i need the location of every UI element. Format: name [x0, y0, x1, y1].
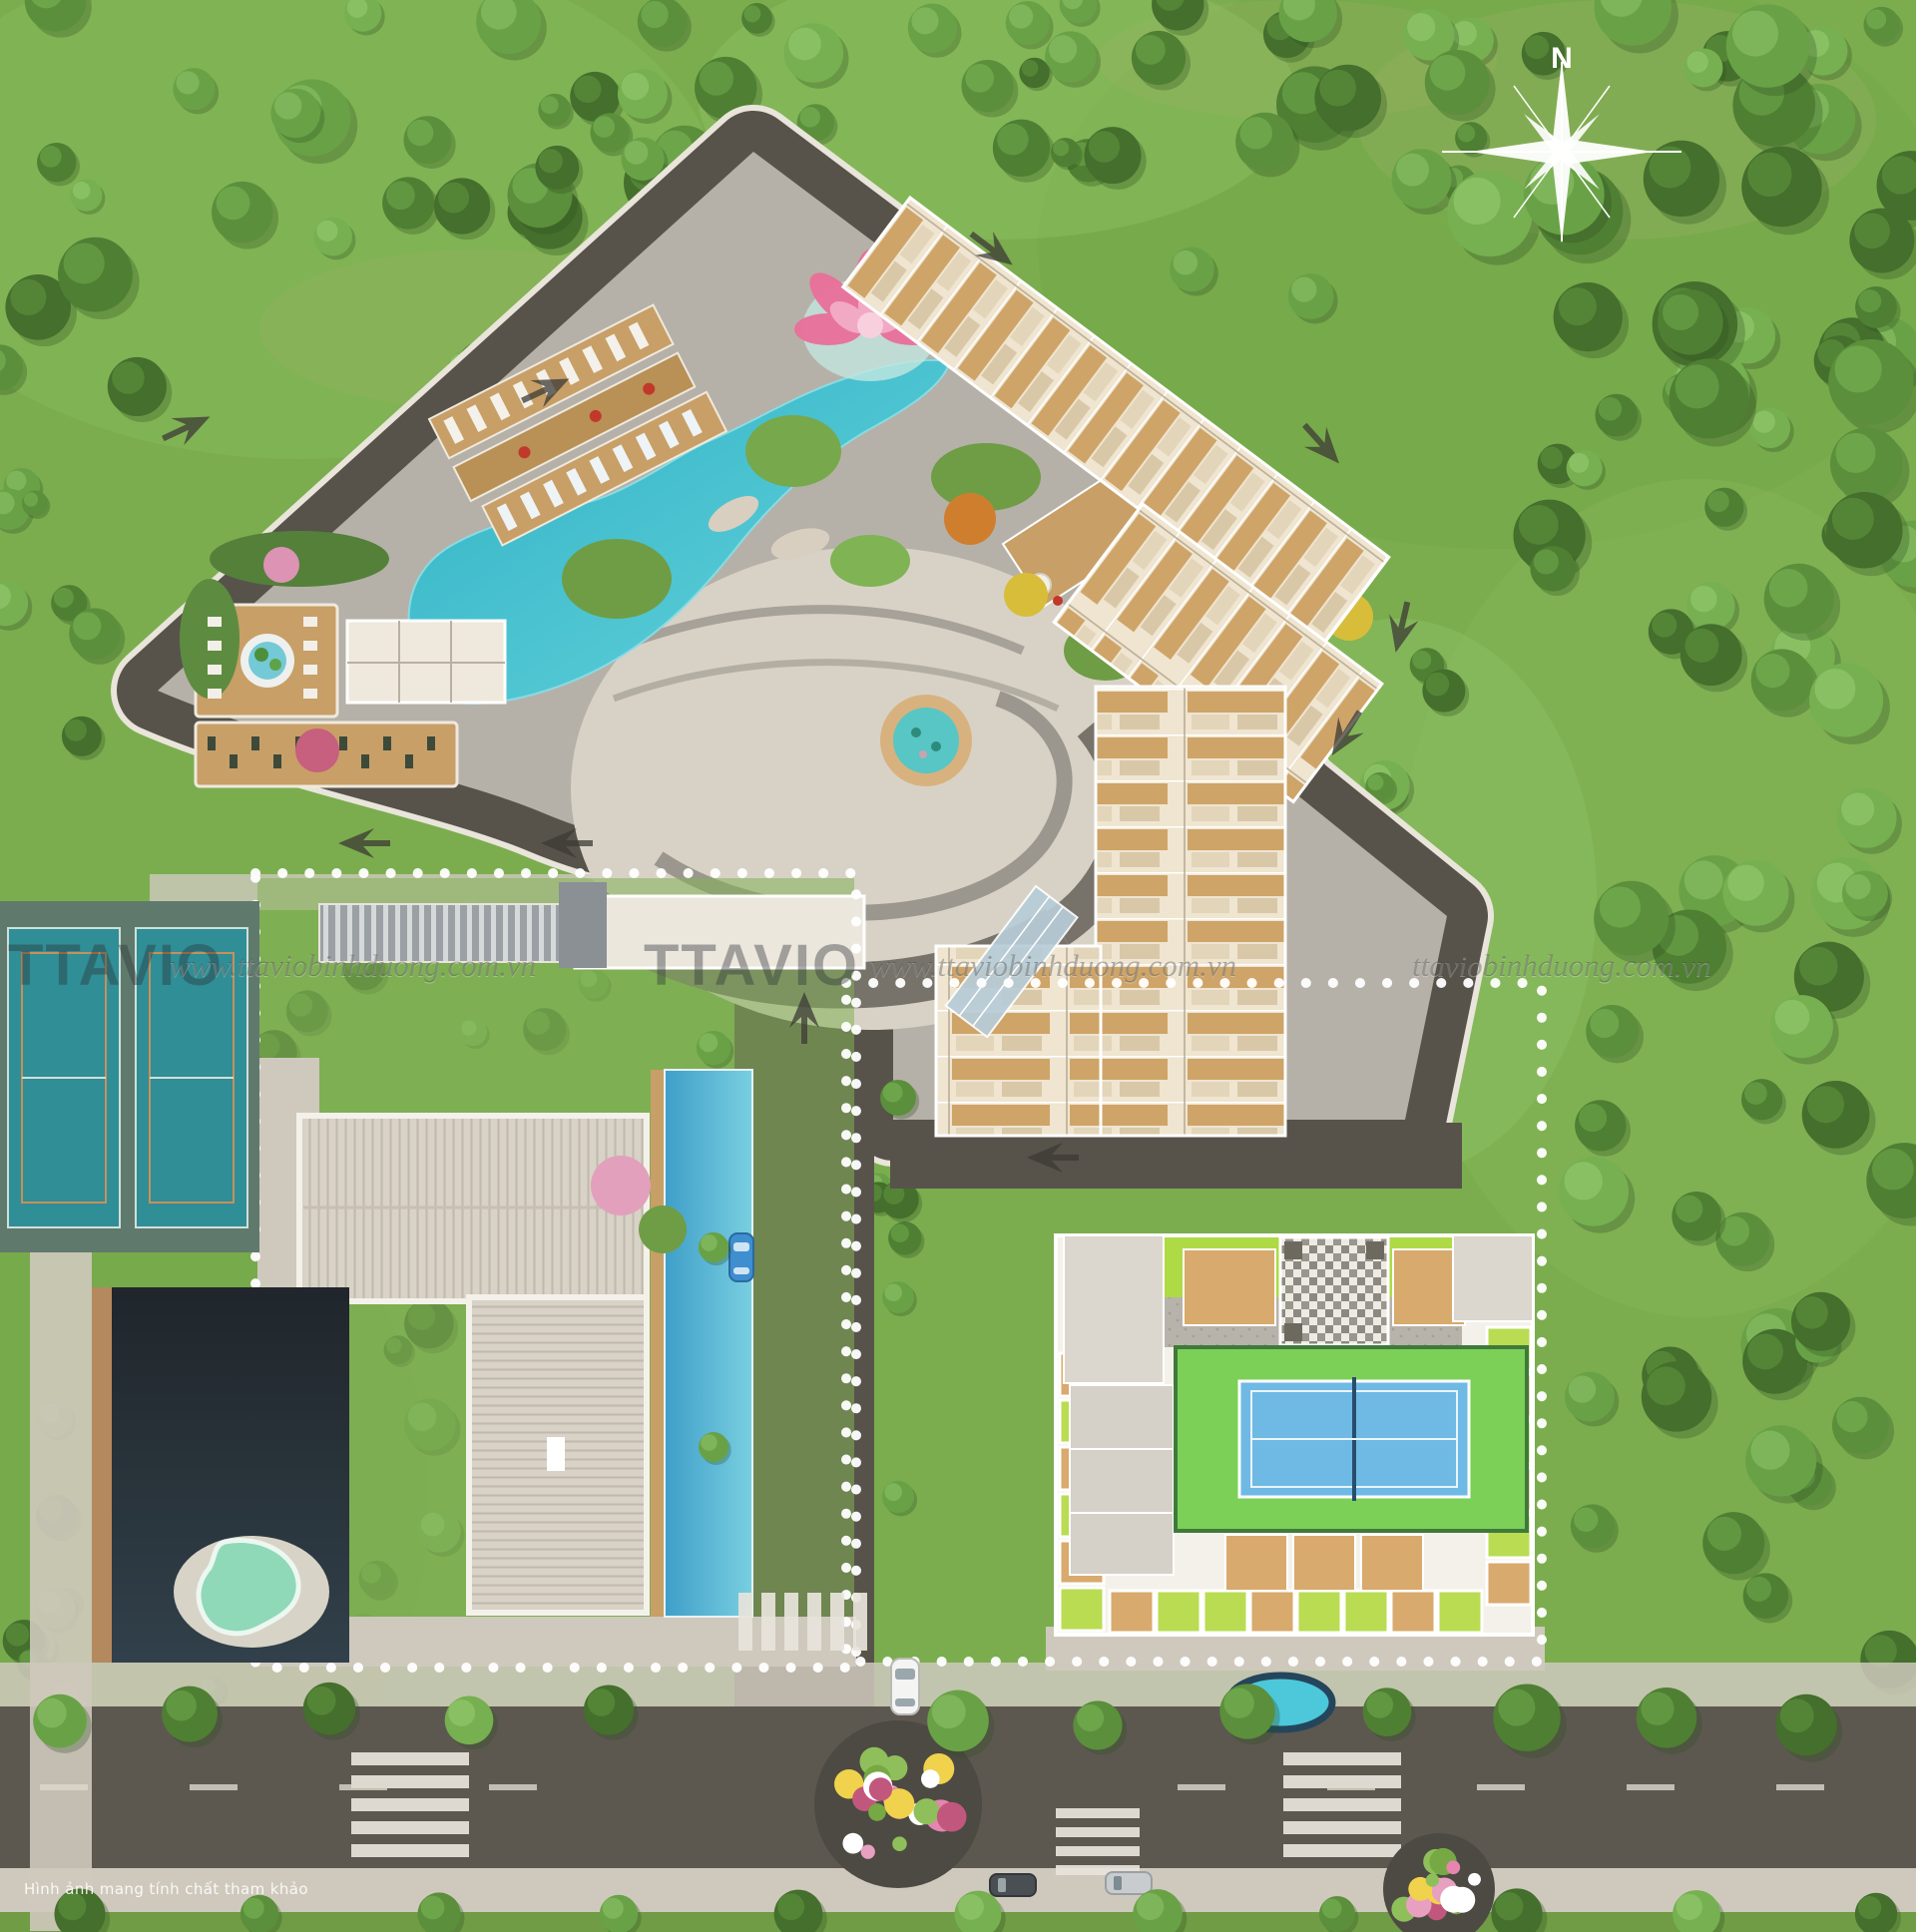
- tree-highlight: [307, 1687, 336, 1715]
- red-flowering-tree: [295, 728, 339, 772]
- tree-highlight: [884, 1283, 902, 1301]
- gym-equipment: [427, 736, 435, 750]
- tree-highlight: [1407, 13, 1435, 41]
- tree-highlight: [1396, 154, 1429, 187]
- tree-highlight: [1795, 1296, 1827, 1328]
- tree-highlight: [1049, 35, 1077, 63]
- tree-highlight: [911, 7, 938, 34]
- dining-table: [303, 689, 317, 699]
- tree-highlight: [1684, 629, 1718, 663]
- tree-highlight: [243, 1898, 264, 1919]
- tree-highlight: [1750, 1431, 1789, 1470]
- tree-highlight: [217, 187, 250, 221]
- flower: [1426, 1873, 1439, 1886]
- lane-dash: [489, 1784, 537, 1790]
- dining-table: [303, 641, 317, 651]
- tree-highlight: [1835, 433, 1875, 473]
- tree-highlight: [641, 1, 668, 28]
- tree-highlight: [1291, 277, 1316, 302]
- tree-highlight: [1137, 1893, 1164, 1920]
- tree-highlight: [73, 182, 91, 200]
- roof-pergola: [1184, 1249, 1275, 1325]
- balcony-cell: [1110, 1591, 1154, 1633]
- dining-table: [208, 641, 222, 651]
- tree-highlight: [6, 471, 26, 491]
- reference-caption: Hình ảnh mang tính chất tham khảo: [24, 1878, 308, 1900]
- balcony-cell: [1060, 1588, 1104, 1631]
- tree-highlight: [1684, 860, 1723, 899]
- gym-equipment: [230, 754, 238, 768]
- entry-wall: [559, 882, 607, 968]
- tree-highlight: [1707, 491, 1729, 513]
- lane-dash: [1776, 1784, 1824, 1790]
- tree-highlight: [1744, 1082, 1767, 1105]
- tree-highlight: [10, 279, 46, 315]
- tree-highlight: [541, 96, 559, 114]
- tree-highlight: [1223, 1688, 1253, 1717]
- pink-flowering-tree: [263, 547, 299, 583]
- tree-highlight: [1574, 1508, 1598, 1532]
- zebra-stripe: [351, 1844, 469, 1857]
- zebra-stripe: [1283, 1821, 1401, 1834]
- tree-highlight: [1559, 287, 1597, 325]
- lane-dash: [1327, 1784, 1375, 1790]
- tree-highlight: [6, 1623, 29, 1646]
- tree-highlight: [965, 64, 994, 93]
- tree-highlight: [1676, 1196, 1702, 1222]
- red-umbrella: [1053, 596, 1063, 606]
- tree-highlight: [799, 107, 820, 128]
- lane-dash: [40, 1784, 88, 1790]
- zebra-stripe: [351, 1821, 469, 1834]
- zebra-stripe: [1283, 1798, 1401, 1811]
- tree-highlight: [1366, 1691, 1393, 1718]
- tree-highlight: [603, 1898, 624, 1919]
- masterplan-canvas: N: [0, 0, 1916, 1932]
- zebra-stripe: [351, 1798, 469, 1811]
- tree-highlight: [1240, 117, 1272, 149]
- tree-highlight: [64, 242, 105, 283]
- tree-highlight: [1707, 1517, 1741, 1551]
- tree-highlight: [1565, 1162, 1603, 1200]
- entry-pergola: [319, 904, 574, 962]
- flower: [1446, 1860, 1460, 1874]
- roof-terrace: [1225, 1535, 1287, 1591]
- zebra-stripe: [1283, 1844, 1401, 1857]
- tree-highlight: [1866, 9, 1886, 29]
- zebra-stripe: [853, 1593, 867, 1651]
- tree-highlight: [73, 612, 101, 640]
- tree-highlight: [997, 124, 1029, 156]
- tree-highlight: [699, 1033, 718, 1052]
- tree-highlight: [1454, 178, 1501, 225]
- tree-highlight: [1647, 1366, 1685, 1405]
- lane-dash: [339, 1784, 387, 1790]
- balcony-cell: [1250, 1591, 1294, 1633]
- tree-highlight: [1367, 774, 1383, 790]
- dining-table: [303, 665, 317, 675]
- tree-highlight: [1746, 1577, 1771, 1602]
- tree-highlight: [1807, 1086, 1844, 1123]
- tree-highlight: [1690, 586, 1716, 612]
- tree-highlight: [1835, 345, 1882, 392]
- pink-flowering-tree: [591, 1156, 651, 1215]
- tree-highlight: [1089, 131, 1120, 162]
- tree-highlight: [1600, 886, 1641, 927]
- tree-highlight: [1872, 1149, 1914, 1191]
- zebra-stripe: [1283, 1752, 1401, 1765]
- tree-highlight: [1799, 947, 1838, 986]
- gym-equipment: [273, 754, 281, 768]
- tree-highlight: [1534, 550, 1559, 575]
- tree-highlight: [1676, 364, 1719, 408]
- lane-dash: [190, 1784, 238, 1790]
- gym-equipment: [339, 736, 347, 750]
- dining-table: [208, 689, 222, 699]
- zebra-stripe: [807, 1593, 821, 1651]
- gray-car: [990, 1874, 1036, 1896]
- tree-highlight: [1541, 447, 1563, 469]
- gym-equipment: [361, 754, 369, 768]
- tree-highlight: [1590, 1009, 1619, 1038]
- tree-highlight: [407, 120, 433, 146]
- tree-highlight: [539, 149, 563, 173]
- gym-equipment: [208, 736, 216, 750]
- fountain-pool: [893, 708, 959, 773]
- tower-roof: [1453, 1235, 1533, 1321]
- flower: [913, 1798, 939, 1824]
- tree-highlight: [1174, 250, 1198, 275]
- tree-highlight: [1815, 669, 1856, 710]
- roof-rooms: [1070, 1385, 1174, 1575]
- tree-highlight: [1053, 140, 1069, 156]
- lane-dash: [1477, 1784, 1525, 1790]
- tree-highlight: [1569, 453, 1589, 473]
- tree-highlight: [1727, 865, 1763, 901]
- tree-highlight: [588, 1689, 616, 1716]
- tree-highlight: [1676, 1894, 1702, 1920]
- tree-highlight: [1009, 4, 1033, 28]
- zebra-stripe: [1056, 1846, 1140, 1856]
- lane-dash: [1627, 1784, 1675, 1790]
- tree-highlight: [177, 71, 200, 94]
- dining-table: [303, 617, 317, 627]
- unit-block-east: [1096, 687, 1285, 1136]
- gym-equipment: [251, 736, 259, 750]
- tree-highlight: [622, 73, 649, 100]
- zebra-stripe: [738, 1593, 752, 1651]
- zebra-stripe: [1056, 1827, 1140, 1837]
- tree-highlight: [1022, 60, 1039, 77]
- site-plan-rendering: N TTAVIO www.ttaviobinhduong.com.vn TTAV…: [0, 0, 1916, 1932]
- tree-highlight: [1732, 11, 1778, 57]
- tree-highlight: [1525, 35, 1549, 59]
- tree-highlight: [1753, 410, 1775, 432]
- balcony-cell: [1438, 1591, 1482, 1633]
- tree-highlight: [1426, 673, 1450, 697]
- flower: [937, 1802, 967, 1832]
- tree-highlight: [884, 1483, 902, 1501]
- flower: [921, 1769, 940, 1788]
- tree-highlight: [1845, 874, 1870, 899]
- white-car: [891, 1659, 919, 1714]
- tree-highlight: [1663, 294, 1698, 330]
- tree-highlight: [54, 588, 74, 608]
- flower: [868, 1803, 886, 1821]
- tree-highlight: [438, 183, 469, 214]
- tree-highlight: [274, 92, 301, 119]
- tree-highlight: [743, 5, 760, 22]
- dining-table: [208, 617, 222, 627]
- tree-highlight: [1858, 1896, 1881, 1919]
- tree-highlight: [1498, 1690, 1535, 1726]
- tennis-courts-area: [0, 901, 259, 1252]
- tree-highlight: [1412, 651, 1431, 670]
- tree-highlight: [891, 1224, 909, 1242]
- roof-terrace: [1293, 1535, 1355, 1591]
- tree-highlight: [958, 1894, 984, 1920]
- clubhouse-pool: [665, 1070, 752, 1617]
- gym-equipment: [405, 754, 413, 768]
- tree-highlight: [112, 361, 145, 394]
- tree-highlight: [40, 146, 62, 168]
- flower: [892, 1836, 907, 1851]
- tree-highlight: [421, 1896, 445, 1920]
- tree-highlight: [625, 141, 649, 165]
- tree-highlight: [1769, 569, 1808, 608]
- balcony-cell: [1297, 1591, 1341, 1633]
- flower: [1468, 1873, 1481, 1886]
- tree-highlight: [316, 221, 337, 241]
- tree-highlight: [1686, 51, 1707, 72]
- tree-highlight: [24, 492, 38, 506]
- gym-equipment: [383, 736, 391, 750]
- tree-highlight: [593, 116, 615, 138]
- tree-highlight: [932, 1694, 966, 1728]
- orange-flowering-tree: [944, 493, 996, 545]
- dining-table: [208, 665, 222, 675]
- zebra-stripe: [1056, 1808, 1140, 1818]
- sidewalk-west: [30, 1252, 92, 1931]
- tree-highlight: [1322, 1899, 1342, 1919]
- flower: [869, 1777, 892, 1800]
- tree-highlight: [1780, 1698, 1814, 1732]
- tree-highlight: [701, 1234, 718, 1251]
- zebra-stripe: [784, 1593, 798, 1651]
- tree-highlight: [1519, 505, 1559, 545]
- tree-highlight: [1136, 35, 1166, 65]
- tree-highlight: [1569, 1375, 1596, 1402]
- tree-highlight: [448, 1699, 475, 1726]
- tree-highlight: [1319, 70, 1356, 107]
- balcony-cell: [1391, 1591, 1435, 1633]
- tree-highlight: [65, 720, 87, 741]
- flower: [861, 1845, 875, 1859]
- tree-highlight: [1836, 1401, 1867, 1432]
- tree-highlight: [700, 62, 733, 96]
- boardwalk: [92, 1287, 112, 1663]
- tree-highlight: [386, 181, 415, 210]
- tree-highlight: [1755, 654, 1789, 688]
- balcony-cell: [1157, 1591, 1200, 1633]
- zebra-stripe: [830, 1593, 844, 1651]
- tree-highlight: [1747, 153, 1791, 197]
- tree-highlight: [37, 1698, 67, 1728]
- tree-highlight: [1775, 1000, 1810, 1035]
- tree-highlight: [166, 1690, 197, 1721]
- water-garden: [92, 1287, 349, 1663]
- tree-highlight: [1865, 1635, 1897, 1667]
- flower: [842, 1833, 863, 1854]
- roof-terrace: [1361, 1535, 1423, 1591]
- tree-highlight: [883, 1083, 903, 1103]
- tree-highlight: [1854, 213, 1890, 248]
- flower: [1440, 1886, 1467, 1913]
- tree-highlight: [1832, 498, 1874, 540]
- balcony-cell: [1344, 1591, 1388, 1633]
- tree-highlight: [1747, 1333, 1783, 1369]
- tree-highlight: [1599, 397, 1623, 421]
- tree-highlight: [1457, 125, 1475, 143]
- entry-canopy: [575, 896, 864, 968]
- tree-highlight: [1858, 289, 1881, 312]
- tree-highlight: [574, 76, 601, 103]
- tree-highlight: [1495, 1892, 1523, 1920]
- balcony-cell: [1203, 1591, 1247, 1633]
- silver-car: [1106, 1872, 1152, 1894]
- tower-roof: [1064, 1235, 1164, 1383]
- zebra-stripe: [351, 1752, 469, 1765]
- tree-highlight: [1652, 613, 1676, 638]
- tree-highlight: [777, 1893, 804, 1920]
- tree-highlight: [1641, 1692, 1674, 1725]
- clubroom-floorplan: [347, 621, 505, 703]
- tree-highlight: [788, 28, 821, 61]
- yellow-flowering-tree: [1004, 573, 1048, 617]
- balcony-cell: [1487, 1562, 1531, 1605]
- blue-car: [729, 1233, 753, 1281]
- tree-highlight: [1430, 55, 1466, 91]
- tree-highlight: [701, 1434, 718, 1451]
- tree-highlight: [1579, 1104, 1607, 1132]
- zebra-stripe: [761, 1593, 775, 1651]
- lane-dash: [1178, 1784, 1225, 1790]
- tree-highlight: [1077, 1704, 1104, 1731]
- tree-highlight: [1841, 792, 1874, 825]
